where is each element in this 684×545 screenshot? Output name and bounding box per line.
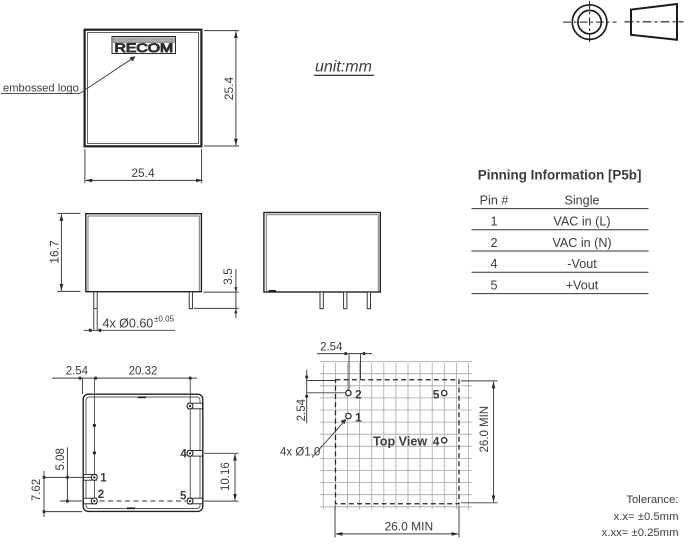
svg-text:Top View: Top View — [373, 434, 427, 448]
svg-text:2.54: 2.54 — [320, 341, 343, 353]
svg-text:Single: Single — [564, 194, 599, 208]
svg-text:26.0 MIN: 26.0 MIN — [479, 406, 491, 453]
svg-text:4: 4 — [433, 435, 440, 449]
svg-text:25.4: 25.4 — [131, 166, 155, 180]
svg-text:unit:mm: unit:mm — [315, 59, 372, 76]
svg-text:4: 4 — [180, 449, 187, 461]
svg-text:1: 1 — [490, 215, 497, 229]
svg-text:2.54: 2.54 — [296, 398, 308, 421]
svg-text:RECOM: RECOM — [115, 41, 174, 55]
svg-text:5: 5 — [490, 279, 497, 293]
svg-text:4x Ø1.0: 4x Ø1.0 — [280, 446, 320, 458]
svg-text:3.5: 3.5 — [221, 268, 235, 285]
svg-text:VAC in (N): VAC in (N) — [552, 236, 611, 250]
svg-text:x.xx= ±0.25mm: x.xx= ±0.25mm — [602, 527, 679, 539]
svg-text:4x Ø0.60: 4x Ø0.60 — [103, 317, 154, 331]
svg-text:25.4: 25.4 — [222, 76, 236, 100]
svg-text:±0.05: ±0.05 — [154, 315, 175, 324]
svg-text:5: 5 — [433, 387, 440, 401]
svg-text:16.7: 16.7 — [48, 240, 62, 264]
svg-text:VAC in (L): VAC in (L) — [553, 215, 610, 229]
svg-text:+Vout: +Vout — [566, 279, 599, 293]
svg-text:Tolerance:: Tolerance: — [626, 494, 678, 506]
svg-text:-Vout: -Vout — [567, 257, 597, 271]
svg-text:4: 4 — [490, 257, 497, 271]
svg-text:5.08: 5.08 — [55, 448, 67, 470]
svg-text:Pinning Information [P5b]: Pinning Information [P5b] — [478, 168, 642, 183]
svg-text:1: 1 — [355, 410, 362, 424]
svg-text:20.32: 20.32 — [129, 366, 158, 378]
svg-text:2.54: 2.54 — [66, 366, 89, 378]
svg-text:2: 2 — [98, 489, 104, 501]
svg-text:2: 2 — [490, 236, 497, 250]
svg-text:7.62: 7.62 — [31, 479, 43, 501]
svg-text:embossed logo: embossed logo — [3, 83, 79, 95]
svg-text:26.0 MIN: 26.0 MIN — [384, 520, 433, 534]
svg-text:10.16: 10.16 — [220, 462, 232, 491]
svg-text:2: 2 — [355, 387, 362, 401]
svg-text:1: 1 — [100, 473, 107, 485]
svg-text:x.x= ±0.5mm: x.x= ±0.5mm — [614, 511, 679, 523]
svg-text:Pin #: Pin # — [480, 194, 509, 208]
